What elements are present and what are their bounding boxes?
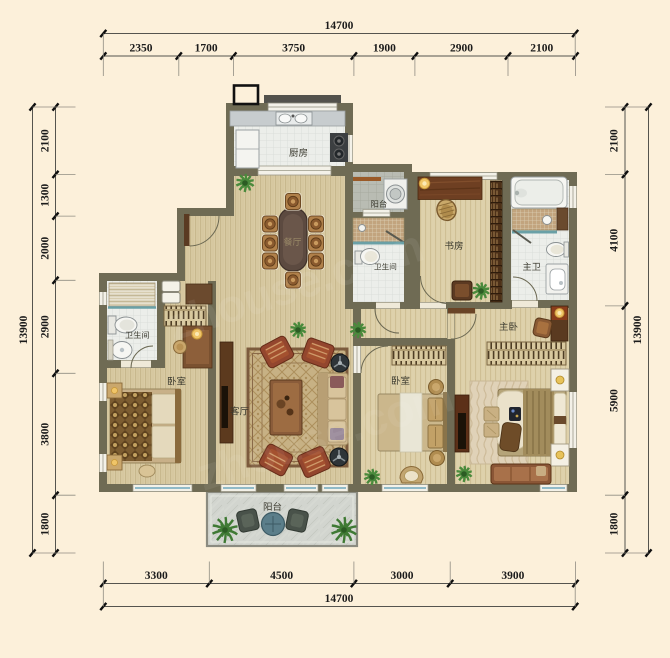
svg-text:3750: 3750	[282, 43, 305, 55]
svg-text:2350: 2350	[130, 43, 153, 55]
svg-text:5900: 5900	[609, 389, 621, 412]
svg-text:13900: 13900	[632, 315, 644, 344]
svg-text:1800: 1800	[40, 512, 52, 535]
svg-text:14700: 14700	[325, 593, 354, 605]
svg-text:2100: 2100	[40, 129, 52, 152]
svg-text:2900: 2900	[40, 315, 52, 338]
svg-text:1800: 1800	[609, 512, 621, 535]
svg-text:4500: 4500	[270, 570, 293, 582]
svg-text:3000: 3000	[391, 570, 414, 582]
svg-text:1900: 1900	[373, 43, 396, 55]
svg-text:3900: 3900	[501, 570, 524, 582]
svg-text:2900: 2900	[450, 43, 473, 55]
svg-text:3300: 3300	[145, 570, 168, 582]
svg-text:14700: 14700	[325, 20, 354, 32]
svg-text:2100: 2100	[609, 129, 621, 152]
svg-text:13900: 13900	[18, 315, 30, 344]
svg-text:3800: 3800	[40, 423, 52, 446]
svg-text:1700: 1700	[195, 43, 218, 55]
svg-text:4100: 4100	[609, 228, 621, 251]
svg-text:2000: 2000	[40, 236, 52, 259]
svg-text:2100: 2100	[530, 43, 553, 55]
svg-text:1300: 1300	[40, 183, 52, 206]
